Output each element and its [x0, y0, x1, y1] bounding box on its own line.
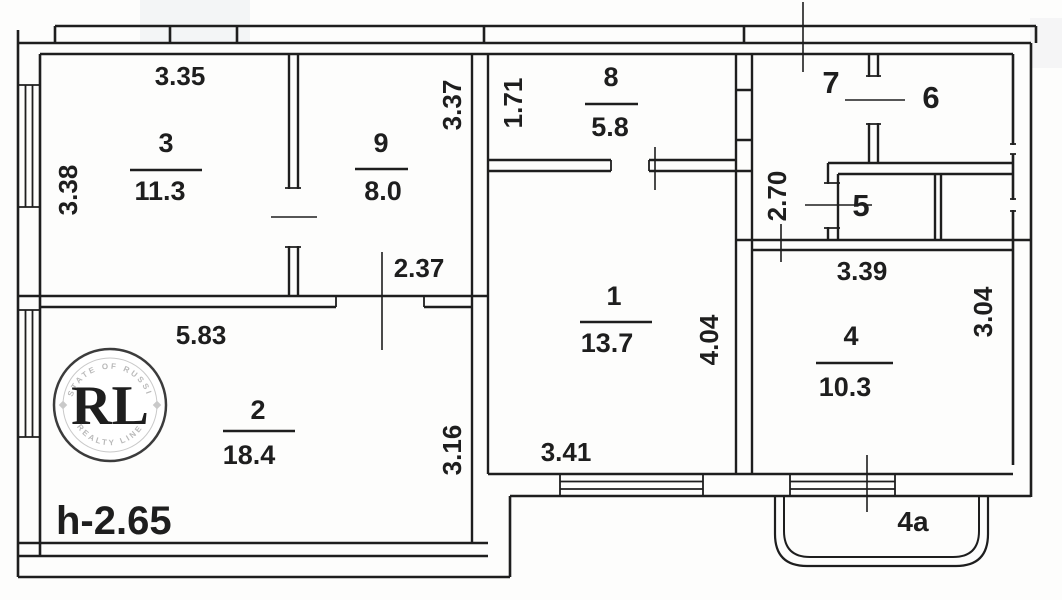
room1-width-dim: 3.41 — [541, 437, 592, 467]
area-fraction-lines — [130, 104, 893, 431]
room7-number: 7 — [822, 65, 839, 100]
balcony-outline-inner — [784, 497, 979, 557]
room9-area: 8.0 — [364, 176, 402, 206]
room9-depth-dim: 3.37 — [437, 80, 467, 131]
door-width-dim: 2.37 — [394, 253, 445, 283]
room4-width-dim: 3.39 — [837, 256, 888, 286]
room1-number: 1 — [606, 281, 621, 311]
room3-width-dim: 3.35 — [155, 61, 206, 91]
room2-number: 2 — [250, 395, 265, 425]
room1-depth-dim: 4.04 — [694, 314, 724, 365]
room4-area: 10.3 — [819, 372, 872, 402]
floor-plan-drawing: 3.35 3 11.3 3.38 9 8.0 3.37 2.37 1.71 8 … — [0, 0, 1062, 600]
room6-number: 6 — [922, 80, 939, 115]
ceiling-height-note: h-2.65 — [56, 499, 172, 543]
room3-area: 11.3 — [134, 176, 185, 206]
room1-area: 13.7 — [581, 328, 634, 358]
hall-width-dim: 2.70 — [762, 171, 792, 222]
scan-artifact — [140, 0, 250, 42]
realty-watermark-logo: RL ESTATE OF RUSSIA REALTY LINE — [54, 349, 166, 461]
room9-number: 9 — [373, 128, 388, 158]
room4-depth-dim: 3.04 — [968, 286, 998, 337]
room2-area: 18.4 — [223, 440, 276, 470]
floor-plan: 3.35 3 11.3 3.38 9 8.0 3.37 2.37 1.71 8 … — [0, 0, 1062, 600]
room8-area: 5.8 — [591, 112, 629, 142]
room8-number: 8 — [603, 62, 618, 92]
room3-depth-dim: 3.38 — [53, 165, 83, 216]
room2-depth-dim: 3.16 — [437, 425, 467, 476]
hall8-width-dim: 1.71 — [498, 78, 528, 129]
dimension-ticks — [271, 2, 905, 512]
balcony-outline-outer — [775, 497, 988, 566]
balcony-label: 4a — [897, 506, 929, 537]
room5-number: 5 — [852, 188, 869, 223]
room4-number: 4 — [843, 321, 858, 351]
room3-number: 3 — [158, 128, 173, 158]
room2-width-dim: 5.83 — [176, 320, 227, 350]
